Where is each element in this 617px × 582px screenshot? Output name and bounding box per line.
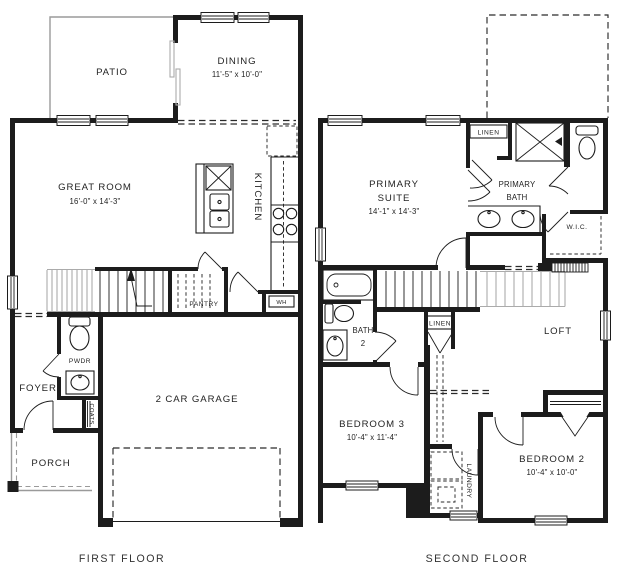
window [328, 116, 362, 126]
shower-head [555, 137, 562, 146]
toilet-room-door [549, 167, 568, 194]
floorplan-page: WH PATIO DINING 11'-5" x 10'-0" GREAT RO… [0, 0, 617, 582]
wic-label: W.I.C. [567, 224, 588, 231]
railing-hatch [552, 263, 588, 272]
primary-linen-door [470, 160, 492, 188]
window [535, 516, 567, 525]
window [96, 116, 128, 126]
window [601, 311, 611, 340]
cooktop [273, 208, 296, 234]
primary-bath-label-1: PRIMARY [499, 180, 536, 189]
bath2-label-2: 2 [361, 339, 366, 348]
coats-label: COATS [88, 403, 94, 424]
primary-toilet [576, 126, 598, 159]
bath2-label-1: BATH [352, 326, 373, 335]
patio-sliding-door [170, 41, 180, 105]
second-floor-caption: SECOND FLOOR [426, 553, 529, 565]
hall-door [230, 272, 258, 292]
window [426, 116, 460, 126]
first-floor-caption: FIRST FLOOR [79, 553, 165, 565]
window [201, 13, 234, 23]
porch-label: PORCH [31, 458, 70, 469]
bedroom2-dims: 10'-4" x 10'-0" [527, 468, 578, 477]
second-floor-plan: LINEN PRIMARY SUITE 14'-1" x 14'-3" PRIM… [316, 15, 611, 525]
bath2-door [375, 332, 396, 362]
washer-dryer [431, 452, 462, 508]
primary-shower [516, 123, 564, 161]
primary-linen-label: LINEN [478, 130, 500, 137]
floorplan-drawing: WH PATIO DINING 11'-5" x 10'-0" GREAT RO… [0, 0, 617, 582]
wic-dashed [550, 216, 601, 254]
loft-label: LOFT [544, 326, 572, 337]
primary-bath-label-2: BATH [506, 193, 527, 202]
bedroom3-label: BEDROOM 3 [339, 419, 405, 430]
garage-label: 2 CAR GARAGE [156, 394, 239, 405]
window [8, 276, 18, 309]
dining-label: DINING [218, 56, 257, 67]
primary-suite-dims: 14'-1" x 14'-3" [369, 207, 420, 216]
bedroom2-closet [550, 402, 601, 437]
bath2-toilet [325, 304, 354, 323]
bedroom2-door [495, 417, 523, 445]
front-door [24, 401, 53, 430]
kitchen-island [196, 164, 233, 233]
window [57, 116, 90, 126]
bath2-tub [323, 270, 375, 300]
laundry-label: LAUNDRY [465, 464, 472, 499]
garage-door [113, 448, 280, 522]
powder-door [43, 354, 59, 377]
primary-suite-label-2: SUITE [378, 193, 411, 204]
kitchen-counter [267, 126, 298, 290]
roof-dashed-outline [487, 15, 608, 118]
stair-direction-arrow [127, 268, 152, 306]
window [238, 13, 269, 23]
powder-toilet [69, 317, 90, 350]
bedroom2-label: BEDROOM 2 [519, 454, 585, 465]
pantry-label: PANTRY [189, 301, 218, 308]
bath2-sink [323, 330, 347, 360]
water-heater: WH [269, 296, 294, 307]
great-room-label: GREAT ROOM [58, 182, 132, 193]
closet-rod [550, 402, 601, 405]
porch-post [8, 481, 19, 492]
window [346, 481, 378, 490]
primary-suite-label-1: PRIMARY [369, 179, 419, 190]
primary-vanity [468, 206, 540, 232]
first-floor-plan: WH PATIO DINING 11'-5" x 10'-0" GREAT RO… [8, 13, 304, 528]
refrigerator [267, 126, 297, 156]
water-heater-label: WH [276, 300, 286, 306]
first-floor-walls [10, 15, 303, 527]
hall-linen-label: LINEN [429, 321, 451, 328]
kitchen-label: KITCHEN [252, 173, 263, 221]
bedroom3-door [390, 367, 418, 395]
bedroom3-dims: 10'-4" x 11'-4" [347, 433, 397, 442]
laundry-door [452, 449, 478, 475]
patio-label: PATIO [96, 67, 128, 78]
island-sink [210, 194, 229, 227]
window [450, 511, 477, 520]
foyer-label: FOYER [19, 383, 57, 394]
powder-label: PWDR [69, 358, 91, 365]
powder-sink [66, 371, 94, 394]
primary-suite-door [436, 238, 466, 268]
dining-dims: 11'-5" x 10'-0" [212, 70, 262, 79]
window [316, 228, 326, 261]
pantry-door [198, 252, 222, 269]
great-room-dims: 16'-0" x 14'-3" [70, 197, 121, 206]
first-floor-stairs [47, 268, 163, 312]
